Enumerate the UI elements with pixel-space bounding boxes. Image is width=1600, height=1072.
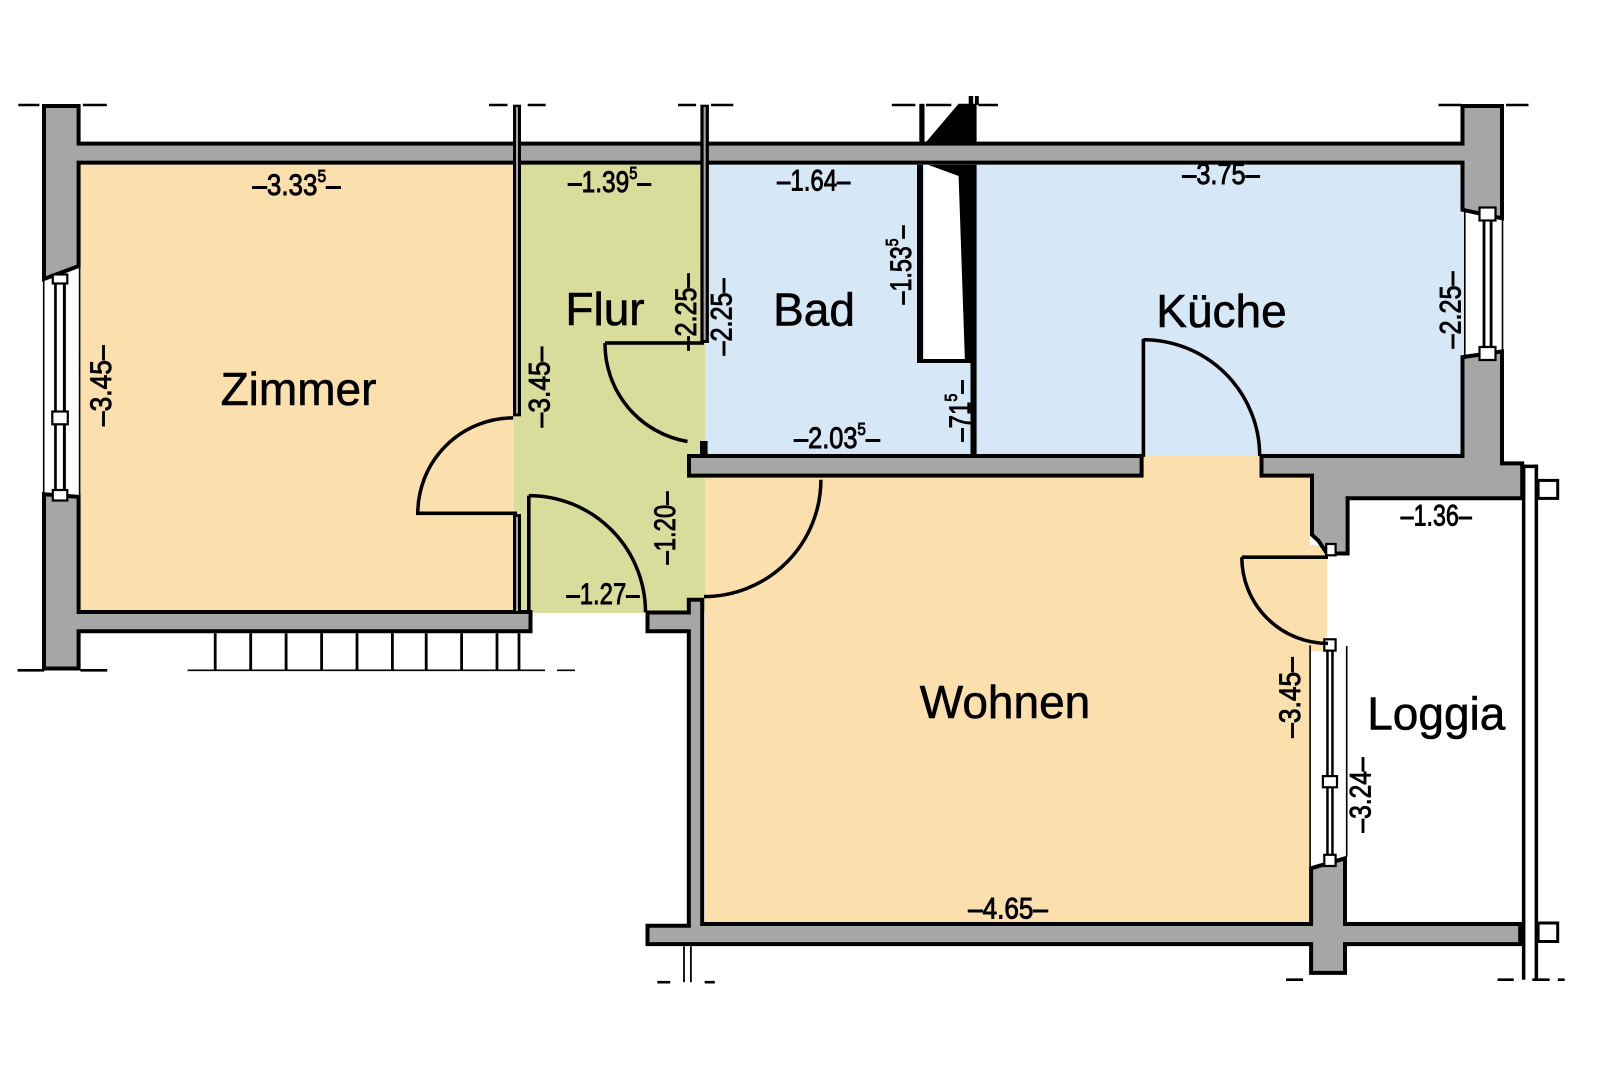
svg-text:Küche: Küche [1156,285,1286,337]
svg-text:–2.25–: –2.25– [669,273,703,351]
svg-text:–3.45–: –3.45– [83,345,117,426]
svg-text:–3.24–: –3.24– [1343,757,1377,833]
svg-text:–2.25–: –2.25– [704,278,738,356]
svg-text:Loggia: Loggia [1367,688,1506,740]
svg-text:Wohnen: Wohnen [920,676,1091,728]
svg-text:–3.335–: –3.335– [252,166,341,201]
svg-text:–1.20–: –1.20– [647,491,681,565]
svg-text:–715–: –715– [942,380,977,442]
svg-text:–1.27–: –1.27– [567,576,641,610]
svg-text:–1.64–: –1.64– [777,163,851,197]
svg-text:–3.45–: –3.45– [522,346,556,427]
svg-text:–1.535–: –1.535– [882,225,917,304]
svg-text:Zimmer: Zimmer [221,363,377,415]
svg-text:–4.65–: –4.65– [968,892,1048,925]
svg-text:–1.36–: –1.36– [1401,499,1472,533]
svg-text:Flur: Flur [565,283,644,335]
svg-text:–2.035–: –2.035– [794,419,880,455]
svg-text:–1.395–: –1.395– [568,164,652,199]
svg-text:–3.45–: –3.45– [1272,657,1306,738]
svg-text:–2.25–: –2.25– [1433,271,1467,349]
svg-text:–3.75–: –3.75– [1182,157,1260,190]
svg-text:Bad: Bad [773,284,855,336]
